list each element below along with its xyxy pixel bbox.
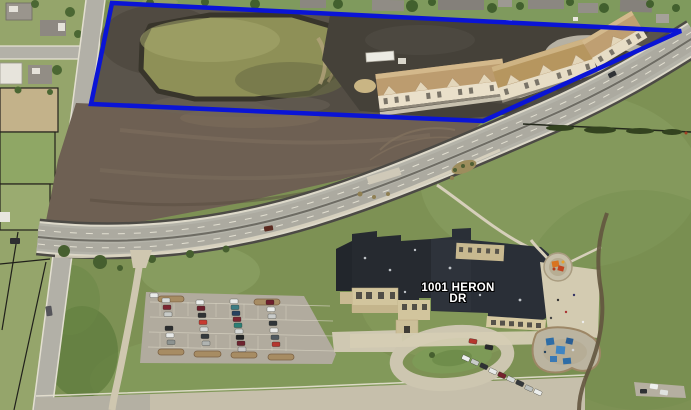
aerial-map-view: 1001 HERON DR — [0, 0, 691, 410]
address-label: 1001 HERON DR — [418, 283, 498, 305]
address-label-line2: DR — [418, 294, 498, 305]
aerial-imagery-canvas — [0, 0, 691, 410]
retention-pond — [140, 15, 345, 99]
playground-round-pad — [544, 253, 572, 281]
dirt-pile — [354, 79, 376, 93]
construction-trailer — [366, 51, 395, 62]
parking-lot — [140, 292, 336, 364]
side-street — [0, 46, 84, 59]
